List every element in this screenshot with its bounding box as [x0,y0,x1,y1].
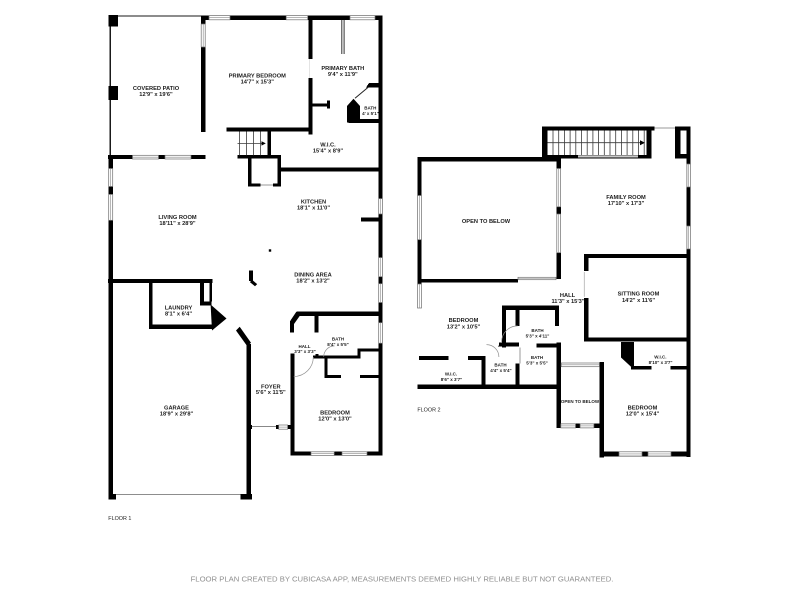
svg-text:BEDROOM: BEDROOM [449,318,479,324]
svg-text:8'6" x 3'7": 8'6" x 3'7" [441,377,462,382]
svg-text:18'2" x 13'2": 18'2" x 13'2" [296,278,330,284]
svg-text:15'4" x 8'9": 15'4" x 8'9" [313,148,344,154]
svg-text:BEDROOM: BEDROOM [628,405,658,411]
svg-text:SITTING ROOM: SITTING ROOM [618,292,660,298]
svg-text:14'2" x 11'6": 14'2" x 11'6" [622,298,655,304]
svg-text:14'7" x 15'3": 14'7" x 15'3" [241,79,275,85]
svg-text:9'4" x 11'9": 9'4" x 11'9" [328,72,358,78]
svg-text:17'10" x 17'3": 17'10" x 17'3" [608,201,645,207]
svg-text:5'6" x 11'5": 5'6" x 11'5" [256,390,286,396]
svg-text:12'0" x 15'4": 12'0" x 15'4" [626,411,660,417]
svg-text:18'9" x 29'8": 18'9" x 29'8" [160,411,194,417]
svg-text:BATH: BATH [531,328,543,333]
svg-text:OPEN TO BELOW: OPEN TO BELOW [561,399,600,404]
svg-text:12'0" x 13'0": 12'0" x 13'0" [318,417,352,423]
svg-text:BATH: BATH [332,337,344,342]
svg-text:18'1" x 11'0": 18'1" x 11'0" [297,205,330,211]
svg-text:8'10" x 3'7": 8'10" x 3'7" [649,360,673,365]
svg-text:5'3" x 4'11": 5'3" x 4'11" [526,333,550,338]
svg-text:5'3" x 5'5": 5'3" x 5'5" [526,360,547,365]
svg-text:BATH: BATH [494,362,506,367]
svg-text:13'2" x 10'5": 13'2" x 10'5" [447,324,481,330]
svg-text:FLOOR 2: FLOOR 2 [417,408,440,414]
svg-text:4'4" x 5'4": 4'4" x 5'4" [490,368,511,373]
svg-text:18'11" x 28'9": 18'11" x 28'9" [159,221,196,227]
svg-text:W.I.C.: W.I.C. [445,371,457,376]
svg-text:4' x 5'1": 4' x 5'1" [362,111,379,116]
svg-text:11'3" x 15'3": 11'3" x 15'3" [551,299,584,305]
svg-text:HALL: HALL [560,293,576,299]
svg-text:3'3" x 3'3": 3'3" x 3'3" [294,349,315,354]
svg-text:OPEN TO BELOW: OPEN TO BELOW [462,219,511,225]
svg-text:FAMILY ROOM: FAMILY ROOM [606,195,646,201]
svg-text:12'9" x 19'6": 12'9" x 19'6" [139,92,173,98]
svg-text:W.I.C.: W.I.C. [654,355,666,360]
svg-text:8'1" x 6'4": 8'1" x 6'4" [165,311,192,317]
svg-text:BATH: BATH [364,106,376,111]
svg-text:8'4" x 5'5": 8'4" x 5'5" [327,342,348,347]
svg-text:FLOOR 1: FLOOR 1 [108,516,131,522]
svg-text:FLOOR PLAN CREATED BY CUBICASA: FLOOR PLAN CREATED BY CUBICASA APP, MEAS… [191,575,614,584]
